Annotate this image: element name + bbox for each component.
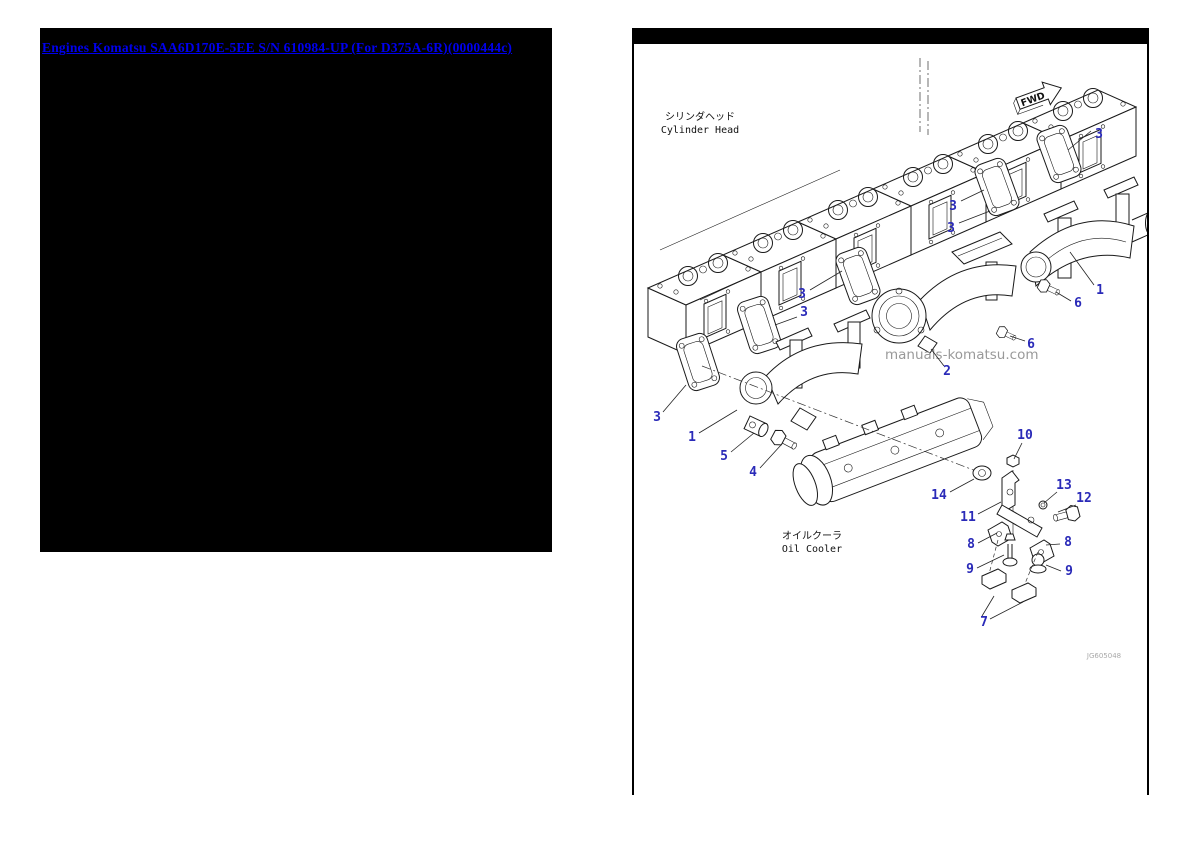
part-callout-number: 13: [1056, 478, 1072, 493]
part-callout-number: 3: [949, 199, 957, 214]
callout-leader-line: [760, 445, 781, 468]
part-callout-number: 5: [720, 449, 728, 464]
diagram-panel: FWD: [632, 28, 1149, 795]
callout-leader-line: [982, 596, 994, 616]
callout-leader-line: [663, 385, 686, 412]
part-callout-number: 12: [1076, 491, 1092, 506]
callout-leader-line: [1044, 492, 1057, 503]
part-callout-number: 14: [931, 488, 947, 503]
part-callout-number: 9: [966, 562, 974, 577]
oil-cooler-label-en: Oil Cooler: [782, 544, 842, 555]
callout-leader-line: [990, 602, 1023, 619]
fwd-arrow-label: FWD: [1020, 90, 1047, 109]
callout-leader-line: [950, 479, 974, 492]
callout-leader-line: [1046, 565, 1061, 571]
part-callout-number: 6: [1074, 296, 1082, 311]
part-callout-number: 8: [967, 537, 975, 552]
part-callout-number: 6: [1027, 337, 1035, 352]
callout-leader-line: [699, 410, 737, 433]
part-callout-number: 2: [943, 364, 951, 379]
left-black-panel: [40, 28, 552, 552]
callout-leader-line: [977, 555, 1004, 568]
part-callout-number: 4: [749, 465, 757, 480]
drawing-code-text: JG605048: [1086, 652, 1121, 660]
part-callout-number: 1: [688, 430, 696, 445]
cylinder-head-label-en: Cylinder Head: [661, 125, 739, 136]
part-callout-number: 3: [798, 287, 806, 302]
part-callout-number: 7: [980, 615, 988, 630]
part-callout-number: 3: [947, 221, 955, 236]
watermark-text: manuals-komatsu.com: [885, 347, 1039, 363]
cylinder-head-label-jp: シリンダヘッド: [665, 110, 735, 123]
part-callout-number: 1: [1096, 283, 1104, 298]
callout-leader-line: [775, 317, 797, 325]
callout-leader-line: [1056, 292, 1071, 301]
part-callout-number: 8: [1064, 535, 1072, 550]
callout-leader-line: [1014, 443, 1022, 459]
part-callout-number: 3: [800, 305, 808, 320]
callout-leader-line: [731, 433, 754, 452]
diagram-svg: FWD: [634, 44, 1147, 795]
part-callout-number: 3: [1095, 127, 1103, 142]
oil-cooler-label-jp: オイルクーラ: [782, 530, 842, 542]
part-callout-number: 3: [653, 410, 661, 425]
parts-page-title-link[interactable]: Engines Komatsu SAA6D170E-5EE S/N 610984…: [42, 40, 512, 56]
part-callout-number: 11: [960, 510, 976, 525]
part-callout-number: 9: [1065, 564, 1073, 579]
part-callout-number: 10: [1017, 428, 1033, 443]
